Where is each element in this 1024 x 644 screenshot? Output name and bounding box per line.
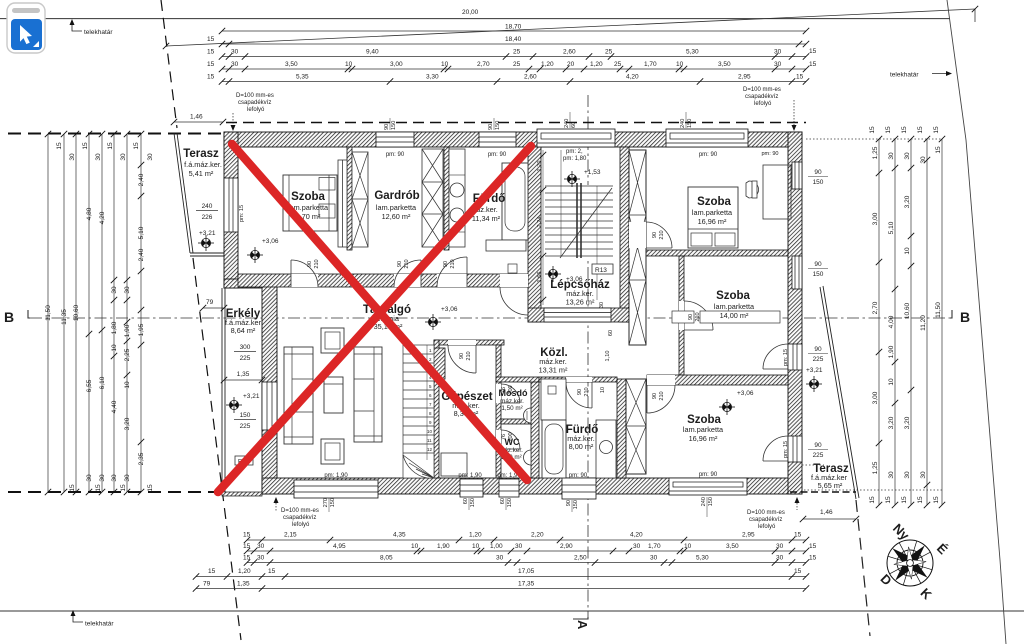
svg-text:D=100 mm-es: D=100 mm-es bbox=[747, 510, 785, 516]
svg-text:25: 25 bbox=[513, 49, 521, 56]
svg-text:3,20: 3,20 bbox=[888, 416, 895, 429]
svg-text:lam.parketta: lam.parketta bbox=[714, 302, 755, 311]
svg-text:8,64 m²: 8,64 m² bbox=[231, 326, 256, 335]
svg-text:3,00: 3,00 bbox=[390, 61, 403, 68]
svg-text:1,20: 1,20 bbox=[590, 61, 603, 68]
svg-text:D=100 mm-es: D=100 mm-es bbox=[281, 508, 319, 514]
svg-text:2,60: 2,60 bbox=[524, 74, 537, 81]
svg-text:30: 30 bbox=[124, 474, 131, 482]
svg-text:30: 30 bbox=[147, 153, 154, 161]
svg-text:150: 150 bbox=[391, 121, 397, 130]
svg-text:10,60: 10,60 bbox=[904, 302, 911, 319]
svg-text:2,20: 2,20 bbox=[531, 532, 544, 539]
svg-text:30: 30 bbox=[86, 474, 93, 482]
svg-text:17,35: 17,35 bbox=[518, 581, 535, 588]
svg-text:+3,21: +3,21 bbox=[806, 367, 823, 374]
svg-text:3,20: 3,20 bbox=[904, 416, 911, 429]
svg-text:2,70: 2,70 bbox=[477, 61, 490, 68]
svg-text:210: 210 bbox=[659, 391, 665, 400]
svg-text:225: 225 bbox=[240, 423, 251, 430]
svg-text:15: 15 bbox=[208, 568, 216, 575]
svg-text:10: 10 bbox=[124, 381, 131, 389]
svg-text:2,35: 2,35 bbox=[138, 452, 145, 465]
svg-text:+3,06: +3,06 bbox=[262, 238, 279, 245]
svg-text:1,20: 1,20 bbox=[238, 568, 251, 575]
svg-text:30: 30 bbox=[888, 471, 895, 479]
svg-text:300: 300 bbox=[240, 344, 251, 351]
svg-text:210: 210 bbox=[450, 259, 456, 268]
svg-text:79: 79 bbox=[203, 581, 211, 588]
svg-text:11,34 m²: 11,34 m² bbox=[472, 214, 501, 223]
svg-text:4,20: 4,20 bbox=[630, 532, 643, 539]
svg-text:30: 30 bbox=[776, 555, 784, 562]
svg-text:90: 90 bbox=[814, 346, 822, 353]
svg-text:150: 150 bbox=[573, 500, 579, 509]
svg-text:telekhatár: telekhatár bbox=[85, 621, 114, 628]
svg-text:90: 90 bbox=[814, 169, 822, 176]
svg-text:15: 15 bbox=[809, 48, 817, 55]
svg-text:30: 30 bbox=[633, 543, 641, 550]
svg-text:15: 15 bbox=[147, 484, 154, 492]
svg-text:5,65 m²: 5,65 m² bbox=[818, 481, 843, 490]
svg-text:2,40: 2,40 bbox=[138, 173, 145, 186]
svg-text:lam.parketta: lam.parketta bbox=[692, 208, 733, 217]
svg-text:30: 30 bbox=[920, 156, 927, 164]
svg-text:3,50: 3,50 bbox=[718, 61, 731, 68]
svg-text:15: 15 bbox=[207, 61, 215, 68]
svg-text:15: 15 bbox=[917, 126, 924, 134]
svg-text:16,96 m²: 16,96 m² bbox=[689, 434, 718, 443]
svg-text:150: 150 bbox=[813, 179, 824, 186]
svg-text:10: 10 bbox=[427, 429, 433, 434]
svg-text:90: 90 bbox=[652, 393, 658, 399]
svg-text:150: 150 bbox=[495, 121, 501, 130]
svg-text:5,30: 5,30 bbox=[696, 555, 709, 562]
svg-text:60: 60 bbox=[463, 498, 469, 504]
svg-text:15: 15 bbox=[885, 496, 892, 504]
svg-text:15: 15 bbox=[933, 126, 940, 134]
svg-text:pm: 90: pm: 90 bbox=[699, 472, 718, 478]
svg-text:+3,06: +3,06 bbox=[441, 306, 458, 313]
svg-text:15: 15 bbox=[82, 142, 89, 150]
svg-text:B: B bbox=[4, 309, 14, 325]
svg-text:2,60: 2,60 bbox=[563, 49, 576, 56]
svg-text:30: 30 bbox=[920, 471, 927, 479]
svg-text:10: 10 bbox=[888, 378, 895, 386]
svg-text:25: 25 bbox=[605, 49, 613, 56]
svg-text:pm: 90: pm: 90 bbox=[488, 152, 507, 158]
svg-text:5,41 m²: 5,41 m² bbox=[189, 169, 214, 178]
svg-text:+3,06: +3,06 bbox=[566, 276, 583, 283]
svg-text:15: 15 bbox=[796, 74, 804, 81]
svg-text:1,90: 1,90 bbox=[888, 345, 895, 358]
svg-text:15: 15 bbox=[885, 126, 892, 134]
svg-text:pm: 1,80: pm: 1,80 bbox=[563, 156, 587, 162]
svg-text:1,46: 1,46 bbox=[190, 114, 203, 121]
svg-text:225: 225 bbox=[813, 452, 824, 459]
svg-text:90: 90 bbox=[566, 500, 572, 506]
svg-text:25: 25 bbox=[614, 61, 622, 68]
svg-text:14,00 m²: 14,00 m² bbox=[720, 311, 749, 320]
svg-text:2,15: 2,15 bbox=[284, 532, 297, 539]
svg-text:+1,53: +1,53 bbox=[584, 169, 601, 176]
svg-text:15: 15 bbox=[794, 532, 802, 539]
svg-text:15: 15 bbox=[207, 49, 215, 56]
svg-text:lefolyó: lefolyó bbox=[754, 101, 772, 107]
svg-text:10: 10 bbox=[111, 344, 118, 352]
svg-text:25: 25 bbox=[513, 61, 521, 68]
svg-text:1,35: 1,35 bbox=[237, 581, 250, 588]
svg-text:2,95: 2,95 bbox=[742, 532, 755, 539]
svg-text:máz.ker.: máz.ker. bbox=[500, 398, 524, 405]
svg-text:pm: 90: pm: 90 bbox=[699, 152, 718, 158]
svg-text:pm: 90: pm: 90 bbox=[386, 152, 405, 158]
svg-text:225: 225 bbox=[240, 355, 251, 362]
svg-text:2,24: 2,24 bbox=[537, 217, 543, 228]
svg-text:10: 10 bbox=[472, 543, 480, 550]
svg-text:210: 210 bbox=[404, 259, 410, 268]
svg-text:15: 15 bbox=[243, 555, 251, 562]
svg-text:15: 15 bbox=[133, 142, 140, 150]
svg-text:2,90: 2,90 bbox=[560, 543, 573, 550]
svg-text:15: 15 bbox=[120, 484, 127, 492]
svg-text:30: 30 bbox=[257, 543, 265, 550]
svg-text:csapadékvíz: csapadékvíz bbox=[283, 515, 316, 521]
svg-text:210: 210 bbox=[659, 230, 665, 239]
svg-text:79: 79 bbox=[206, 299, 214, 306]
svg-text:1,10: 1,10 bbox=[605, 351, 611, 362]
svg-text:2,70: 2,70 bbox=[872, 301, 879, 314]
svg-text:10: 10 bbox=[411, 543, 419, 550]
svg-text:226: 226 bbox=[202, 214, 213, 221]
svg-text:13,31 m²: 13,31 m² bbox=[539, 366, 568, 375]
svg-text:4,40: 4,40 bbox=[111, 400, 118, 413]
svg-text:17,05: 17,05 bbox=[518, 568, 535, 575]
svg-text:1,20: 1,20 bbox=[537, 161, 543, 172]
svg-text:90: 90 bbox=[688, 314, 694, 320]
svg-text:90: 90 bbox=[397, 261, 403, 267]
svg-text:76: 76 bbox=[501, 434, 507, 440]
svg-text:15: 15 bbox=[809, 543, 817, 550]
svg-text:15: 15 bbox=[933, 496, 940, 504]
svg-text:150: 150 bbox=[330, 498, 336, 507]
svg-text:D=100 mm-es: D=100 mm-es bbox=[236, 93, 274, 99]
svg-text:csapadékvíz: csapadékvíz bbox=[745, 94, 778, 100]
svg-text:15: 15 bbox=[207, 74, 215, 81]
svg-text:1,95: 1,95 bbox=[138, 323, 145, 336]
svg-text:15: 15 bbox=[107, 142, 114, 150]
svg-text:200: 200 bbox=[508, 385, 514, 394]
svg-text:15: 15 bbox=[901, 126, 908, 134]
svg-text:1,90: 1,90 bbox=[124, 324, 131, 337]
svg-text:11,20: 11,20 bbox=[920, 315, 927, 331]
svg-text:10: 10 bbox=[345, 61, 353, 68]
svg-text:30: 30 bbox=[904, 471, 911, 479]
svg-text:lam.parketta: lam.parketta bbox=[376, 203, 417, 212]
svg-text:1,25: 1,25 bbox=[872, 146, 879, 159]
svg-text:1,20: 1,20 bbox=[541, 61, 554, 68]
svg-text:15: 15 bbox=[95, 484, 102, 492]
svg-text:90: 90 bbox=[814, 261, 822, 268]
svg-text:+3,21: +3,21 bbox=[243, 393, 260, 400]
svg-text:270: 270 bbox=[323, 498, 329, 507]
svg-text:90: 90 bbox=[443, 261, 449, 267]
svg-text:240: 240 bbox=[202, 203, 213, 210]
svg-text:150: 150 bbox=[813, 271, 824, 278]
svg-text:1,70: 1,70 bbox=[644, 61, 657, 68]
svg-text:4,00: 4,00 bbox=[888, 315, 895, 328]
svg-text:30: 30 bbox=[120, 153, 127, 161]
svg-text:3,20: 3,20 bbox=[124, 417, 131, 430]
svg-text:15: 15 bbox=[207, 36, 215, 43]
svg-text:15: 15 bbox=[935, 146, 942, 154]
svg-text:15: 15 bbox=[243, 532, 251, 539]
svg-text:1,90: 1,90 bbox=[437, 543, 450, 550]
svg-text:30: 30 bbox=[257, 555, 265, 562]
svg-text:240: 240 bbox=[564, 119, 570, 128]
svg-text:90: 90 bbox=[384, 124, 390, 130]
svg-text:15: 15 bbox=[809, 555, 817, 562]
svg-text:Gardrób: Gardrób bbox=[374, 190, 419, 202]
svg-text:6,55: 6,55 bbox=[86, 379, 93, 392]
svg-text:30: 30 bbox=[774, 49, 782, 56]
svg-text:3,50: 3,50 bbox=[726, 543, 739, 550]
svg-text:4,95: 4,95 bbox=[333, 543, 346, 550]
svg-text:30: 30 bbox=[776, 543, 784, 550]
svg-text:30: 30 bbox=[888, 152, 895, 160]
svg-text:10: 10 bbox=[676, 61, 684, 68]
svg-text:+3,21: +3,21 bbox=[199, 230, 216, 237]
svg-text:90: 90 bbox=[307, 261, 313, 267]
svg-text:15: 15 bbox=[69, 484, 76, 492]
svg-text:1,66: 1,66 bbox=[537, 272, 543, 283]
svg-text:11,50: 11,50 bbox=[935, 302, 942, 318]
svg-text:Szoba: Szoba bbox=[291, 191, 325, 203]
svg-text:pm: 15: pm: 15 bbox=[239, 205, 245, 222]
svg-text:60: 60 bbox=[500, 498, 506, 504]
svg-text:1,80: 1,80 bbox=[111, 321, 118, 334]
svg-text:pm: 15: pm: 15 bbox=[783, 441, 789, 458]
svg-text:30: 30 bbox=[231, 49, 239, 56]
svg-text:30: 30 bbox=[111, 286, 118, 294]
svg-text:1,70: 1,70 bbox=[648, 543, 661, 550]
svg-text:90: 90 bbox=[488, 124, 494, 130]
svg-text:lefolyó: lefolyó bbox=[292, 522, 310, 528]
svg-text:11,35: 11,35 bbox=[61, 309, 68, 325]
svg-text:1,35: 1,35 bbox=[237, 371, 250, 378]
svg-text:10: 10 bbox=[600, 387, 606, 393]
svg-text:12: 12 bbox=[427, 447, 433, 452]
svg-text:15: 15 bbox=[56, 142, 63, 150]
svg-text:30: 30 bbox=[904, 152, 911, 160]
svg-text:1,00: 1,00 bbox=[490, 543, 503, 550]
svg-text:Terasz: Terasz bbox=[183, 148, 219, 160]
svg-text:30: 30 bbox=[599, 302, 605, 308]
svg-text:2,25: 2,25 bbox=[124, 348, 131, 361]
svg-text:15: 15 bbox=[901, 496, 908, 504]
svg-text:+3,06: +3,06 bbox=[737, 390, 754, 397]
svg-text:1,46: 1,46 bbox=[820, 509, 833, 516]
svg-text:20: 20 bbox=[567, 61, 575, 68]
svg-text:lam.parketta: lam.parketta bbox=[683, 425, 724, 434]
svg-text:150: 150 bbox=[708, 497, 714, 506]
svg-text:15: 15 bbox=[794, 568, 802, 575]
svg-text:4,20: 4,20 bbox=[99, 211, 106, 224]
svg-text:4,35: 4,35 bbox=[393, 532, 406, 539]
svg-text:Szoba: Szoba bbox=[716, 290, 750, 302]
svg-text:150: 150 bbox=[507, 498, 513, 507]
svg-text:csapadékvíz: csapadékvíz bbox=[238, 100, 271, 106]
svg-text:pm: 90: pm: 90 bbox=[761, 151, 778, 157]
svg-text:240: 240 bbox=[701, 497, 707, 506]
svg-text:12,60 m²: 12,60 m² bbox=[382, 212, 411, 221]
svg-text:4,20: 4,20 bbox=[626, 74, 639, 81]
svg-text:15: 15 bbox=[809, 61, 817, 68]
svg-text:2,95: 2,95 bbox=[738, 74, 751, 81]
svg-text:B: B bbox=[960, 309, 970, 325]
svg-text:90: 90 bbox=[814, 442, 822, 449]
svg-text:150: 150 bbox=[240, 412, 251, 419]
svg-text:lefolyó: lefolyó bbox=[758, 524, 776, 530]
svg-text:18,40: 18,40 bbox=[505, 36, 522, 43]
svg-text:5,35: 5,35 bbox=[296, 74, 309, 81]
svg-text:200: 200 bbox=[508, 432, 514, 441]
svg-text:D=100 mm-es: D=100 mm-es bbox=[743, 87, 781, 93]
svg-text:1,20: 1,20 bbox=[469, 532, 482, 539]
svg-text:5,30: 5,30 bbox=[686, 49, 699, 56]
svg-text:pm: 90: pm: 90 bbox=[569, 473, 588, 479]
svg-text:10,60: 10,60 bbox=[73, 304, 80, 321]
svg-text:210: 210 bbox=[466, 351, 472, 360]
svg-text:76: 76 bbox=[501, 387, 507, 393]
svg-text:30: 30 bbox=[774, 61, 782, 68]
svg-text:30: 30 bbox=[231, 61, 239, 68]
svg-text:3,50: 3,50 bbox=[285, 61, 298, 68]
svg-text:240: 240 bbox=[680, 119, 686, 128]
svg-text:2,50: 2,50 bbox=[574, 555, 587, 562]
svg-text:30: 30 bbox=[496, 555, 504, 562]
svg-text:150: 150 bbox=[470, 498, 476, 507]
svg-text:10: 10 bbox=[904, 247, 911, 255]
svg-text:1,25: 1,25 bbox=[872, 461, 879, 474]
svg-text:Szoba: Szoba bbox=[697, 196, 731, 208]
svg-text:4,80: 4,80 bbox=[86, 207, 93, 220]
svg-text:9,40: 9,40 bbox=[366, 49, 379, 56]
svg-text:f.á.máz.ker.: f.á.máz.ker. bbox=[184, 160, 222, 169]
svg-text:90: 90 bbox=[577, 389, 583, 395]
svg-text:225: 225 bbox=[813, 356, 824, 363]
svg-text:pm: 15: pm: 15 bbox=[783, 349, 789, 366]
svg-text:telekhatár: telekhatár bbox=[890, 72, 919, 79]
svg-text:60: 60 bbox=[608, 330, 614, 336]
svg-text:20,00: 20,00 bbox=[462, 9, 479, 16]
svg-text:210: 210 bbox=[314, 259, 320, 268]
svg-text:3,00: 3,00 bbox=[872, 212, 879, 225]
svg-text:15: 15 bbox=[268, 568, 276, 575]
svg-text:telekhatár: telekhatár bbox=[84, 29, 113, 36]
svg-text:csapadékvíz: csapadékvíz bbox=[749, 517, 782, 523]
svg-text:8,05: 8,05 bbox=[380, 555, 393, 562]
svg-text:15: 15 bbox=[917, 496, 924, 504]
svg-text:6,10: 6,10 bbox=[99, 376, 106, 389]
svg-text:pm: 1,90: pm: 1,90 bbox=[458, 473, 482, 479]
svg-text:18,70: 18,70 bbox=[505, 24, 522, 31]
svg-text:15: 15 bbox=[869, 126, 876, 134]
svg-text:8,00 m²: 8,00 m² bbox=[569, 442, 594, 451]
svg-text:30: 30 bbox=[95, 153, 102, 161]
svg-text:30: 30 bbox=[111, 474, 118, 482]
svg-text:1,50 m²: 1,50 m² bbox=[501, 405, 522, 412]
svg-text:5,10: 5,10 bbox=[888, 221, 895, 234]
svg-text:5,10: 5,10 bbox=[138, 226, 145, 239]
svg-text:3,30: 3,30 bbox=[426, 74, 439, 81]
svg-text:30: 30 bbox=[69, 153, 76, 161]
svg-text:90: 90 bbox=[459, 353, 465, 359]
svg-text:210: 210 bbox=[584, 387, 590, 396]
svg-text:3,00: 3,00 bbox=[872, 391, 879, 404]
svg-text:11: 11 bbox=[427, 438, 432, 443]
svg-text:30: 30 bbox=[650, 555, 658, 562]
svg-text:150: 150 bbox=[687, 119, 693, 128]
svg-text:30: 30 bbox=[99, 474, 106, 482]
svg-text:13,26 m²: 13,26 m² bbox=[566, 298, 595, 307]
svg-text:60: 60 bbox=[571, 122, 577, 128]
svg-text:30: 30 bbox=[124, 286, 131, 294]
svg-text:10: 10 bbox=[441, 61, 449, 68]
svg-text:R13: R13 bbox=[595, 267, 607, 274]
svg-text:30: 30 bbox=[515, 543, 523, 550]
svg-text:90: 90 bbox=[652, 232, 658, 238]
svg-text:10: 10 bbox=[684, 543, 692, 550]
svg-text:pm: 2,: pm: 2, bbox=[566, 149, 583, 155]
svg-text:lefolyó: lefolyó bbox=[247, 107, 265, 113]
svg-text:15: 15 bbox=[243, 543, 251, 550]
svg-text:3,20: 3,20 bbox=[904, 195, 911, 208]
svg-text:11,50: 11,50 bbox=[45, 305, 52, 321]
svg-text:210: 210 bbox=[695, 312, 701, 321]
svg-text:2,40: 2,40 bbox=[138, 248, 145, 261]
svg-text:A: A bbox=[575, 620, 590, 630]
svg-text:16,96 m²: 16,96 m² bbox=[698, 217, 727, 226]
svg-text:15: 15 bbox=[869, 496, 876, 504]
svg-text:pm: 1,90: pm: 1,90 bbox=[324, 473, 348, 479]
